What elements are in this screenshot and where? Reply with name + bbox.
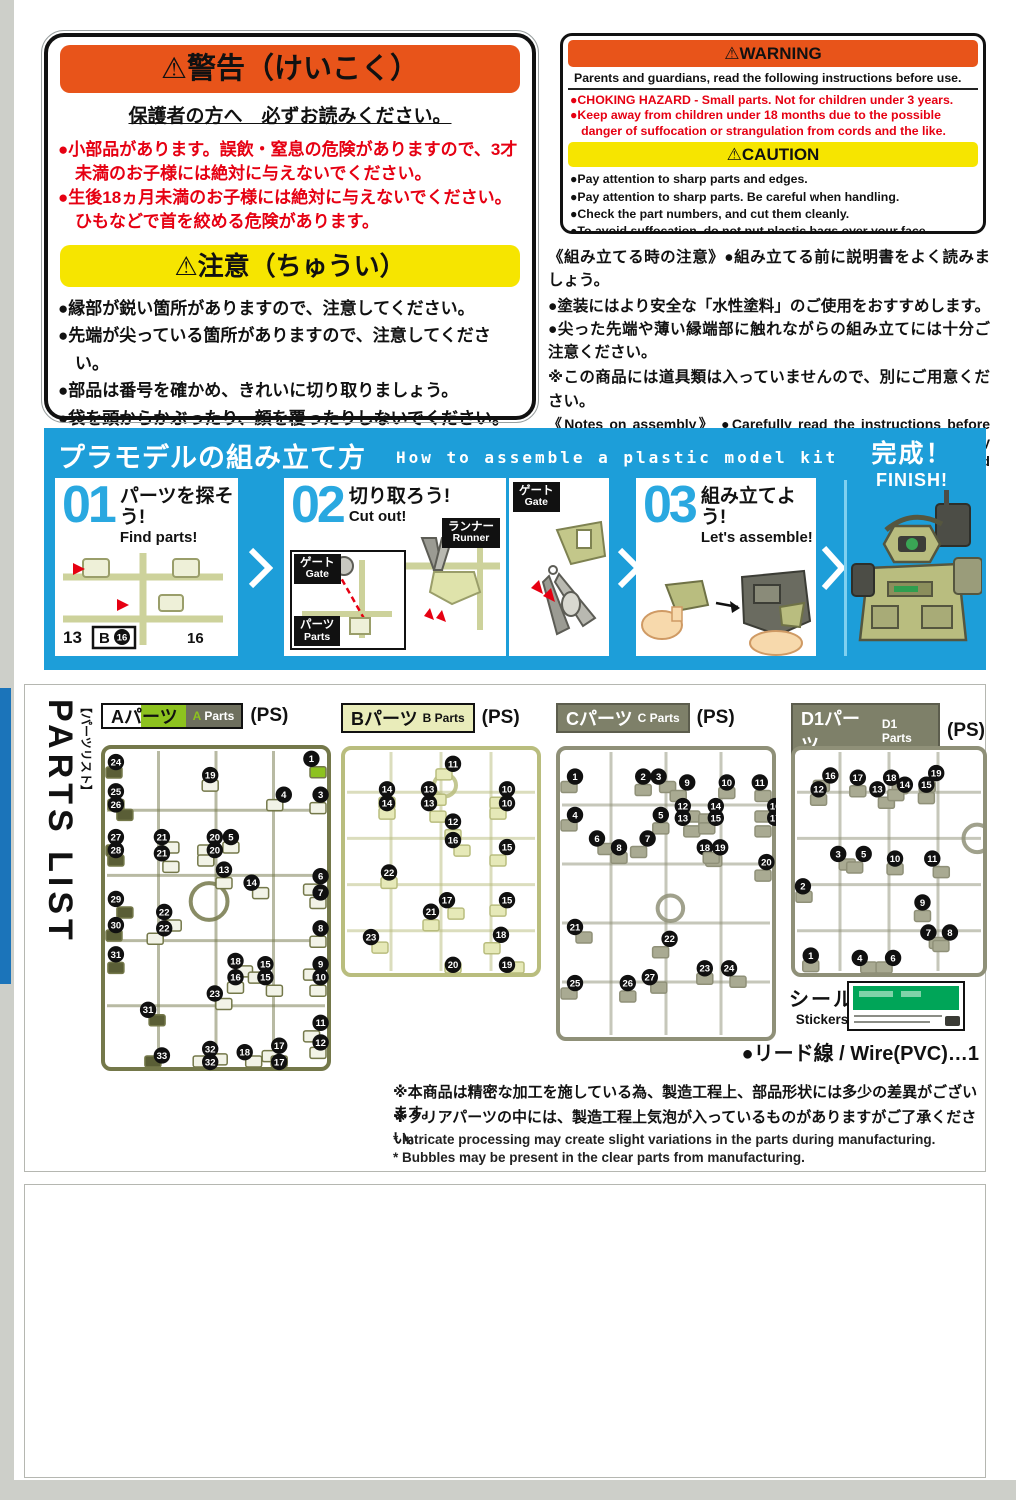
finish-label: 完成！ FINISH! — [852, 434, 972, 491]
notes-jp-line2: ●塗装にはより安全な「水性塗料」のご使用をおすすめします。●尖った先端や薄い縁端… — [548, 295, 990, 365]
jp-caution-header: ⚠注意（ちゅうい） — [60, 245, 520, 287]
parts-tag: パーツ Parts — [294, 616, 340, 646]
svg-text:20: 20 — [761, 858, 772, 869]
en-caution-item: ●To avoid suffocation, do not put plasti… — [570, 223, 976, 234]
svg-text:27: 27 — [645, 973, 656, 984]
runner-b-label-jp: Bパーツ — [351, 705, 418, 731]
part-callout: 21 — [423, 904, 439, 931]
svg-text:1: 1 — [309, 754, 315, 765]
jp-caution-item: ●縁部が鋭い箇所がありますので、注意してください。 — [58, 295, 522, 323]
runner-b-diagram: 111413101413101216152217152123182019 — [341, 746, 541, 982]
svg-text:22: 22 — [159, 924, 170, 935]
sticker-caption-line — [854, 1021, 930, 1023]
step1-title-jp: パーツを探そう! — [120, 487, 238, 529]
en-warning-list: ●CHOKING HAZARD - Small parts. Not for c… — [563, 90, 983, 139]
step-card-3: 03 組み立てよう! Let's assemble! — [636, 478, 816, 656]
runner-c-diagram: 1239101145121416131517678181920212223242… — [556, 746, 776, 1046]
svg-text:3: 3 — [318, 790, 323, 801]
svg-text:17: 17 — [274, 1057, 285, 1068]
en-caution-header: ⚠CAUTION — [568, 142, 978, 167]
step1-title-en: Find parts! — [120, 529, 238, 547]
find-parts-illustration: 13 B 16 16 — [55, 547, 230, 651]
step2-title-en: Cut out! — [349, 508, 450, 526]
blank-lower-panel — [24, 1184, 986, 1478]
runner-d1-label-en: D1 Parts — [882, 717, 930, 745]
jp-warning-subtitle: 保護者の方へ 必ずお読みください。 — [58, 101, 522, 128]
chevron-arrow-icon — [820, 546, 846, 590]
gate-detail-inset: ゲート Gate パーツ Parts — [290, 550, 406, 650]
svg-text:21: 21 — [570, 922, 581, 933]
svg-text:32: 32 — [205, 1044, 216, 1055]
svg-text:6: 6 — [594, 834, 599, 845]
svg-text:8: 8 — [947, 928, 952, 939]
svg-text:5: 5 — [228, 832, 234, 843]
step3-number: 03 — [636, 478, 697, 530]
svg-text:10: 10 — [722, 778, 733, 789]
svg-text:27: 27 — [111, 832, 122, 843]
svg-text:19: 19 — [931, 769, 942, 780]
en-caution-item: ●Pay attention to sharp parts. Be carefu… — [570, 189, 976, 206]
svg-text:12: 12 — [448, 817, 459, 828]
svg-text:6: 6 — [318, 872, 323, 883]
part-callout: 9 — [914, 894, 930, 921]
svg-text:17: 17 — [770, 813, 776, 824]
footnote-en-2: * Bubbles may be present in the clear pa… — [393, 1150, 805, 1165]
runner-b-header: Bパーツ B Parts (PS) — [341, 703, 520, 733]
runner-c-label-en: C Parts — [638, 711, 680, 725]
svg-text:21: 21 — [157, 832, 168, 843]
howto-title-jp: プラモデルの組み立て方 — [58, 436, 366, 475]
svg-text:25: 25 — [570, 978, 581, 989]
step3-title-en: Let's assemble! — [701, 529, 816, 547]
svg-text:15: 15 — [711, 813, 722, 824]
jp-warning-panel: ⚠警告（けいこく） 保護者の方へ 必ずお読みください。 ●小部品があります。誤飲… — [44, 33, 536, 420]
gate-tag: ゲート Gate — [294, 554, 341, 584]
howto-title-en: How to assemble a plastic model kit — [396, 448, 838, 467]
svg-text:10: 10 — [890, 854, 901, 865]
svg-text:16: 16 — [230, 973, 241, 984]
runner-a-material: (PS) — [250, 705, 288, 727]
jp-warning-list: ●小部品があります。誤飲・窒息の危険がありますので、3才未満のお子様には絶対に与… — [58, 138, 522, 235]
jp-warning-header: ⚠警告（けいこく） — [60, 45, 520, 93]
svg-text:15: 15 — [260, 960, 271, 971]
svg-text:2: 2 — [800, 882, 805, 893]
en-caution-item: ●Check the part numbers, and cut them cl… — [570, 206, 976, 223]
en-warning-panel: ⚠WARNING Parents and guardians, read the… — [560, 33, 986, 234]
step-card-2: 02 切り取ろう! Cut out! ランナー Runner — [284, 478, 506, 656]
en-caution-list: ●Pay attention to sharp parts and edges.… — [563, 169, 983, 234]
runner-a-parts-word: Parts — [204, 709, 234, 723]
svg-text:7: 7 — [926, 928, 931, 939]
page-edge-bottom — [0, 1480, 1016, 1500]
finish-divider — [844, 480, 847, 656]
finish-label-jp: 完成！ — [852, 434, 972, 470]
svg-text:15: 15 — [921, 780, 932, 791]
step-card-2b: ゲート Gate — [509, 478, 609, 656]
part-callout: 10 — [719, 774, 735, 798]
parts-list-title: PARTS LIST — [40, 699, 79, 945]
svg-text:22: 22 — [159, 907, 170, 918]
svg-text:10: 10 — [315, 973, 326, 984]
gate-tag-en: Gate — [300, 569, 335, 580]
part-callout: 5 — [653, 807, 669, 834]
svg-text:25: 25 — [111, 787, 122, 798]
parts-tag-en: Parts — [300, 632, 334, 643]
step2-number: 02 — [284, 478, 345, 530]
gate-tag-2: ゲート Gate — [513, 482, 560, 512]
svg-text:9: 9 — [685, 778, 690, 789]
step1-mark-letter: B — [99, 630, 110, 647]
svg-text:23: 23 — [210, 989, 221, 1000]
part-callout: 17 — [271, 1054, 287, 1070]
sticker-sheet — [847, 981, 965, 1031]
svg-text:5: 5 — [861, 849, 867, 860]
svg-text:14: 14 — [382, 799, 393, 810]
svg-text:10: 10 — [502, 799, 513, 810]
stickers-label-jp: シール — [789, 983, 855, 1012]
runner-a-diagram: 2425262728293031313319143212052120131467… — [101, 745, 331, 1076]
step3-title-jp: 組み立てよう! — [701, 487, 816, 529]
part-callout: 2 — [795, 878, 812, 902]
parts-tag-jp: パーツ — [300, 619, 334, 631]
svg-text:17: 17 — [853, 773, 864, 784]
svg-text:21: 21 — [426, 907, 437, 918]
runner-a-header: Aパーツ A Parts (PS) — [101, 703, 288, 729]
svg-text:13: 13 — [424, 799, 435, 810]
svg-text:8: 8 — [318, 924, 323, 935]
svg-text:15: 15 — [502, 842, 513, 853]
howto-banner: プラモデルの組み立て方 How to assemble a plastic mo… — [44, 428, 986, 670]
svg-text:12: 12 — [813, 785, 824, 796]
en-warning-item: ●CHOKING HAZARD - Small parts. Not for c… — [570, 93, 976, 108]
part-callout: 14 — [379, 795, 395, 819]
gate-tag2-en: Gate — [519, 497, 554, 508]
svg-text:9: 9 — [920, 898, 925, 909]
part-callout: 12 — [810, 781, 826, 805]
runner-d1-material: (PS) — [947, 720, 985, 742]
svg-text:21: 21 — [157, 849, 168, 860]
svg-text:20: 20 — [448, 960, 459, 971]
step2-title-jp: 切り取ろう! — [349, 487, 450, 508]
jp-warning-item: ●生後18ヵ月未満のお子様には絶対に与えないでください。ひもなどで首を絞める危険… — [58, 186, 522, 234]
svg-text:4: 4 — [281, 790, 287, 801]
svg-text:12: 12 — [315, 1038, 326, 1049]
svg-text:31: 31 — [143, 1005, 154, 1016]
svg-text:4: 4 — [857, 953, 863, 964]
svg-text:17: 17 — [442, 896, 453, 907]
part-callout: 13 — [216, 861, 232, 888]
notes-jp-line1: 《組み立てる時の注意》●組み立てる前に説明書をよく読みましょう。 — [548, 246, 990, 293]
finish-robot-illustration — [850, 484, 982, 666]
part-callout: 20 — [445, 957, 461, 973]
svg-text:1: 1 — [808, 951, 814, 962]
svg-text:23: 23 — [700, 964, 711, 975]
svg-text:14: 14 — [246, 878, 257, 889]
svg-text:16: 16 — [448, 835, 459, 846]
runner-a-label-en: A Parts — [186, 705, 242, 727]
svg-text:15: 15 — [260, 973, 271, 984]
svg-text:22: 22 — [664, 934, 675, 945]
assemble-illustration — [636, 547, 816, 657]
svg-text:23: 23 — [366, 933, 377, 944]
binding-tab — [0, 688, 11, 984]
svg-text:3: 3 — [656, 772, 661, 783]
footnote-en-1: * Intricate processing may create slight… — [393, 1132, 935, 1147]
svg-text:24: 24 — [111, 757, 122, 768]
svg-text:9: 9 — [318, 960, 323, 971]
runner-tag-en: Runner — [448, 533, 494, 544]
en-warning-header: ⚠WARNING — [568, 40, 978, 67]
part-callout: 2 — [635, 768, 651, 795]
stickers-label: シール Stickers — [789, 983, 855, 1027]
svg-text:24: 24 — [724, 964, 735, 975]
part-callout: 8 — [611, 839, 627, 863]
svg-text:2: 2 — [641, 772, 646, 783]
svg-text:30: 30 — [111, 920, 122, 931]
svg-text:20: 20 — [210, 845, 221, 856]
svg-text:3: 3 — [836, 849, 841, 860]
svg-text:4: 4 — [572, 810, 578, 821]
svg-text:18: 18 — [886, 773, 897, 784]
jp-warning-item: ●小部品があります。誤飲・窒息の危険がありますので、3才未満のお子様には絶対に与… — [58, 138, 522, 186]
step-card-1: 01 パーツを探そう! Find parts! 13 B 16 — [55, 478, 238, 656]
svg-text:8: 8 — [616, 843, 621, 854]
svg-text:16: 16 — [825, 771, 836, 782]
sticker-sheet-green-area — [853, 986, 959, 1010]
svg-text:11: 11 — [927, 854, 938, 865]
svg-text:22: 22 — [384, 868, 395, 879]
part-callout: 1 — [803, 947, 819, 971]
svg-text:32: 32 — [205, 1057, 216, 1068]
svg-text:13: 13 — [424, 785, 435, 796]
svg-text:26: 26 — [623, 978, 634, 989]
runner-tag: ランナー Runner — [442, 518, 500, 548]
svg-text:11: 11 — [448, 759, 459, 770]
svg-text:19: 19 — [205, 770, 216, 781]
instruction-sheet: ⚠警告（けいこく） 保護者の方へ 必ずお読みください。 ●小部品があります。誤飲… — [0, 0, 1016, 1500]
svg-text:14: 14 — [900, 780, 911, 791]
svg-text:31: 31 — [111, 950, 122, 961]
svg-text:11: 11 — [316, 1018, 327, 1029]
chevron-arrow-icon — [247, 548, 273, 588]
stickers-label-en: Stickers — [789, 1012, 855, 1027]
en-caution-item: ●Pay attention to sharp parts and edges. — [570, 171, 976, 188]
svg-text:18: 18 — [230, 956, 241, 967]
svg-text:28: 28 — [111, 845, 122, 856]
svg-text:17: 17 — [274, 1041, 285, 1052]
parts-list-panel: PARTS LIST 【パーツリスト】 Aパーツ A Parts (PS) Bパ… — [24, 684, 986, 1172]
runner-a-label-jp: Aパーツ — [103, 705, 186, 727]
part-callout: 28 — [108, 842, 124, 866]
notes-jp-line3: ※この商品には道具類は入っていませんので、別にご用意ください。 — [548, 366, 990, 413]
runner-c-material: (PS) — [697, 707, 735, 729]
svg-text:13: 13 — [219, 865, 230, 876]
svg-text:18: 18 — [239, 1048, 250, 1059]
svg-text:10: 10 — [502, 785, 513, 796]
part-callout: 17 — [850, 770, 866, 797]
part-callout: 23 — [697, 960, 713, 984]
runner-d1-diagram: 16171819121314153510112978146 — [791, 746, 987, 982]
part-callout: 31 — [108, 946, 124, 973]
svg-text:18: 18 — [496, 930, 507, 941]
svg-text:6: 6 — [890, 953, 895, 964]
maker-logo — [945, 1016, 960, 1026]
step1-mark-left: 13 — [63, 628, 82, 647]
svg-text:7: 7 — [645, 834, 650, 845]
part-callout: 16 — [227, 969, 243, 993]
svg-text:26: 26 — [111, 800, 122, 811]
svg-text:11: 11 — [755, 778, 766, 789]
svg-text:7: 7 — [318, 888, 323, 899]
jp-caution-item: ●先端が尖っている箇所がありますので、注意してください。 — [58, 322, 522, 377]
runner-b-label-en: B Parts — [423, 711, 465, 725]
part-callout: 32 — [193, 1054, 218, 1070]
step1-mark-boxed-num: 16 — [117, 632, 128, 643]
part-callout: 26 — [620, 975, 636, 1002]
svg-text:14: 14 — [382, 785, 393, 796]
sticker-caption-line — [854, 1015, 942, 1017]
svg-text:19: 19 — [715, 843, 726, 854]
step1-mark-right: 16 — [187, 630, 204, 647]
step1-number: 01 — [55, 478, 116, 530]
svg-text:13: 13 — [872, 785, 883, 796]
part-callout: 22 — [381, 864, 397, 888]
svg-text:20: 20 — [210, 832, 221, 843]
svg-text:29: 29 — [111, 894, 122, 905]
svg-text:13: 13 — [678, 813, 689, 824]
runner-c-header: Cパーツ C Parts (PS) — [556, 703, 735, 733]
svg-text:1: 1 — [572, 772, 578, 783]
part-callout: 19 — [202, 767, 218, 791]
svg-text:5: 5 — [658, 810, 664, 821]
en-warning-item: ●Keep away from children under 18 months… — [570, 108, 976, 139]
svg-text:15: 15 — [502, 896, 513, 907]
jp-caution-item: ●部品は番号を確かめ、きれいに切り取りましょう。 — [58, 377, 522, 405]
parts-list-title-jp: 【パーツリスト】 — [78, 701, 95, 797]
runner-b-material: (PS) — [482, 707, 520, 729]
part-callout: 5 — [223, 829, 239, 853]
wire-note: ●リード線 / Wire(PVC)…1 — [742, 1037, 979, 1066]
en-warning-intro: Parents and guardians, read the followin… — [568, 69, 978, 90]
part-callout: 15 — [918, 776, 934, 803]
svg-text:33: 33 — [157, 1051, 168, 1062]
runner-c-label-jp: Cパーツ — [566, 705, 633, 731]
part-callout: 10 — [887, 850, 903, 874]
svg-text:19: 19 — [502, 960, 513, 971]
